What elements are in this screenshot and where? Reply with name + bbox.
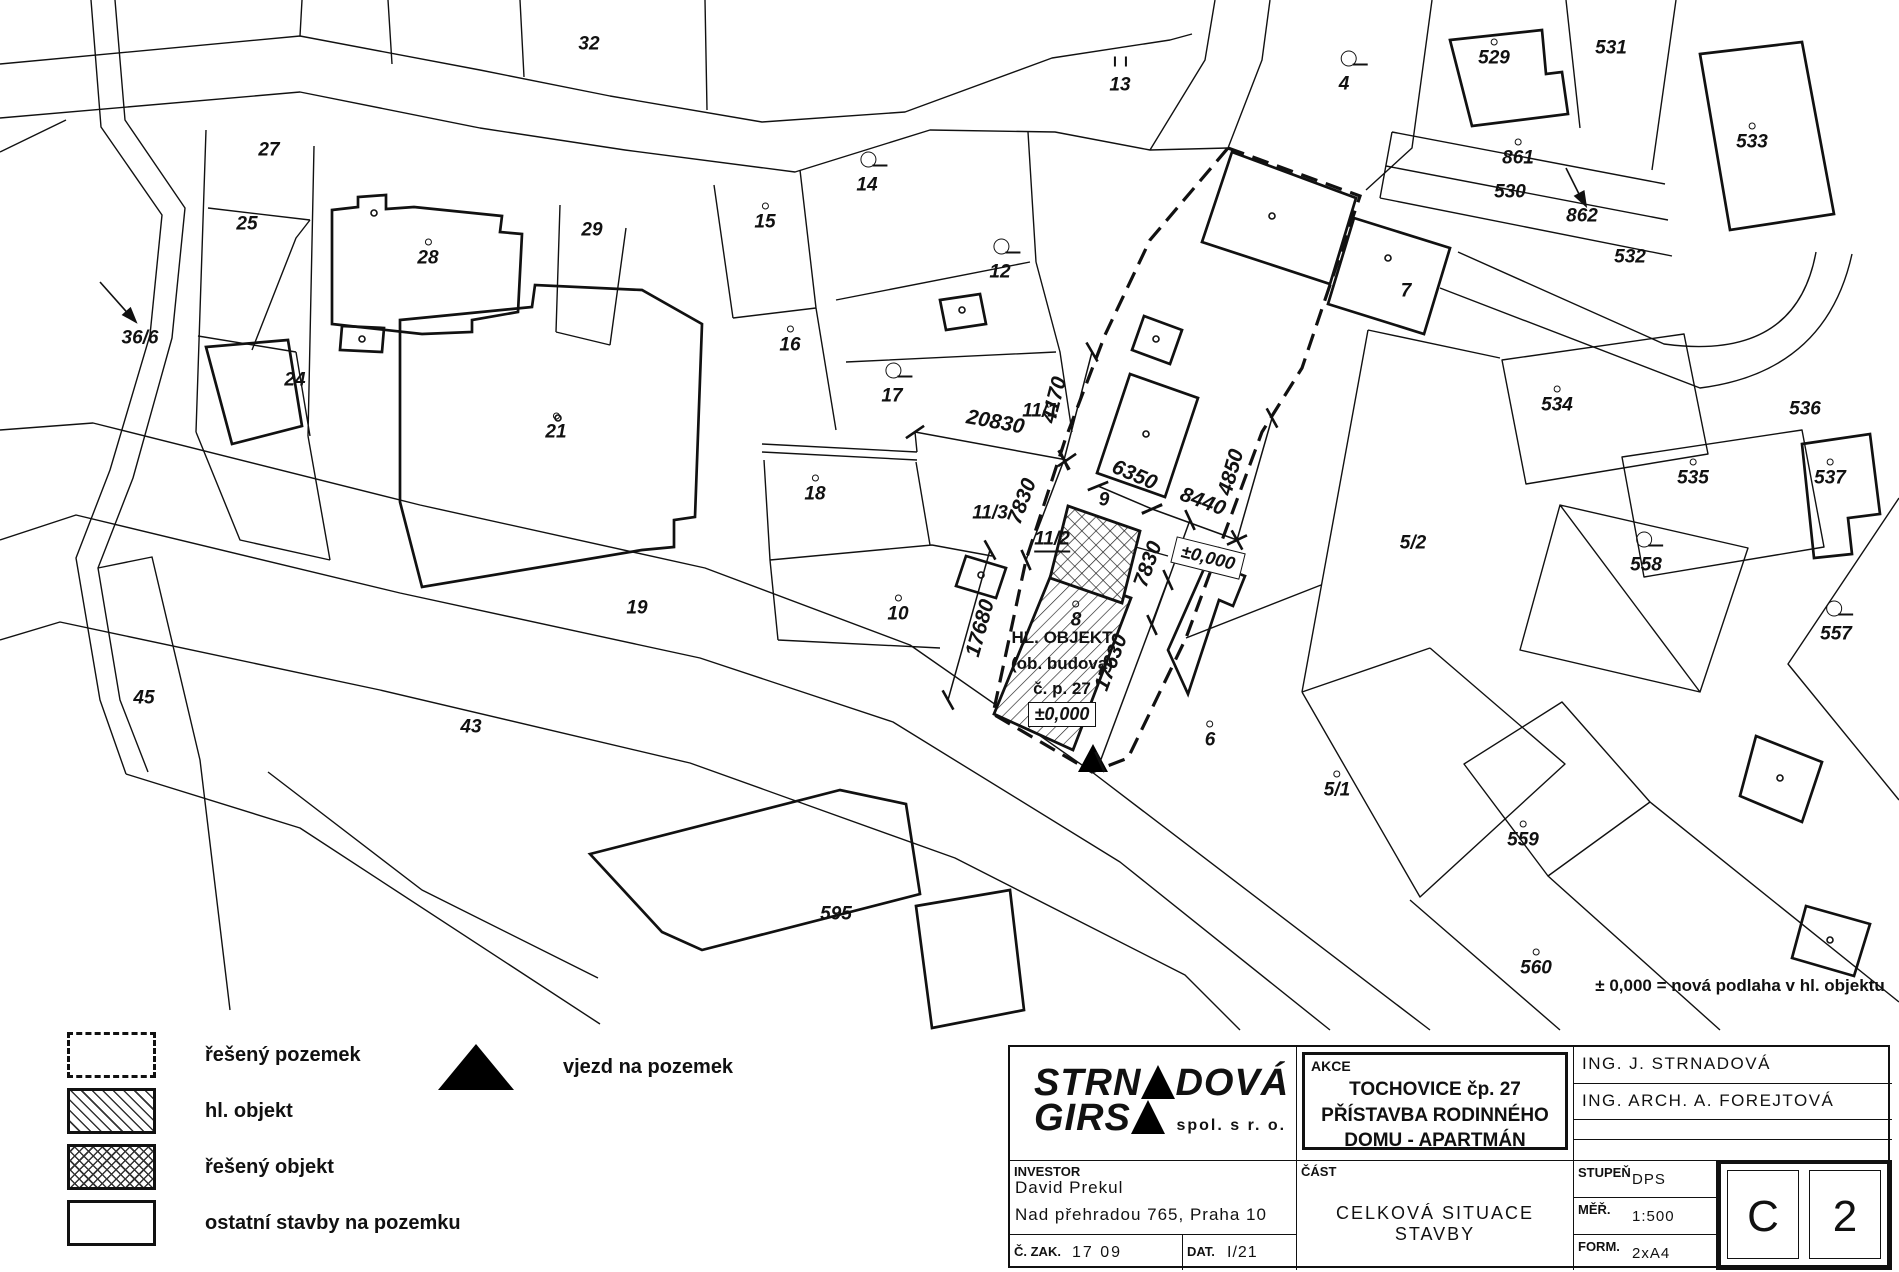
legend-label: řešený pozemek (205, 1044, 361, 1067)
logo-text: DOVÁ (1175, 1062, 1289, 1104)
company-logo: STRNDOVÁ GIRS spol. s r. o. (1010, 1047, 1297, 1160)
dimension-label: 20830 (964, 405, 1027, 438)
scale-row: MĚŘ. 1:500 (1574, 1198, 1716, 1235)
legend-item-solved-parcel: řešený pozemek vjezd na pozemek (67, 1032, 707, 1078)
legend-item-main-object: hl. objekt (67, 1088, 707, 1134)
main-building-line2: (ob. budova) (1011, 651, 1113, 677)
stage-row: STUPEŇ DPS (1574, 1161, 1716, 1198)
scale-label: MĚŘ. (1578, 1202, 1611, 1217)
dashed-swatch (67, 1032, 156, 1078)
investor-cell: INVESTOR David Prekul Nad přehradou 765,… (1010, 1160, 1297, 1270)
part-label: ČÁST (1297, 1161, 1573, 1182)
scale-value: 1:500 (1632, 1208, 1675, 1225)
legend-entrance-label: vjezd na pozemek (563, 1056, 733, 1079)
project-title-line: DOMU - APARTMÁN (1305, 1128, 1565, 1154)
parcel-boundaries (0, 0, 1899, 1030)
entrance-triangle-icon (438, 1044, 514, 1090)
legend-label: řešený objekt (205, 1156, 334, 1179)
main-building-line3: č. p. 27 (1011, 676, 1113, 702)
project-cell: AKCE TOCHOVICE čp. 27 PŘÍSTAVBA RODINNÉH… (1297, 1047, 1574, 1160)
main-building-caption: HL. OBJEKT (ob. budova) č. p. 27 ±0,000 (1011, 625, 1113, 727)
plain-swatch (67, 1200, 156, 1246)
project-box: AKCE TOCHOVICE čp. 27 PŘÍSTAVBA RODINNÉH… (1302, 1052, 1568, 1150)
project-title-line: TOCHOVICE čp. 27 (1305, 1077, 1565, 1103)
main-building-level: ±0,000 (1028, 702, 1097, 727)
triangle-icon (1141, 1065, 1175, 1099)
meta-column: STUPEŇ DPS MĚŘ. 1:500 FORM. 2xA4 (1574, 1160, 1716, 1270)
part-value: CELKOVÁ SITUACE STAVBY (1297, 1203, 1573, 1245)
title-block: STRNDOVÁ GIRS spol. s r. o. AKCE TOCHOVI… (1008, 1045, 1890, 1268)
order-label: Č. ZAK. (1010, 1241, 1065, 1262)
format-row: FORM. 2xA4 (1574, 1235, 1716, 1268)
sheet-letter: C (1727, 1170, 1799, 1259)
triangle-icon (1131, 1100, 1165, 1134)
engineer-row (1574, 1120, 1892, 1140)
order-row: Č. ZAK. 17 09 DAT. I/21 (1010, 1234, 1296, 1270)
legend-item-other-buildings: ostatní stavby na pozemku (67, 1200, 707, 1246)
hatch-swatch (67, 1088, 156, 1134)
sheet-number-box: C 2 (1716, 1160, 1892, 1270)
crosshatch-swatch (67, 1144, 156, 1190)
main-building-line1: HL. OBJEKT (1011, 625, 1113, 651)
project-title-line: PŘÍSTAVBA RODINNÉHO (1305, 1103, 1565, 1129)
legend-label: hl. objekt (205, 1100, 293, 1123)
logo-tagline: spol. s r. o. (1176, 1117, 1286, 1134)
legend-label: ostatní stavby na pozemku (205, 1212, 461, 1235)
dimension-label: 6350 (1109, 455, 1161, 495)
date-label: DAT. (1183, 1241, 1219, 1262)
engineer-row: ING. ARCH. A. FOREJTOVÁ (1574, 1084, 1892, 1120)
engineer-row: ING. J. STRNADOVÁ (1574, 1047, 1892, 1084)
format-label: FORM. (1578, 1239, 1620, 1254)
date-value: I/21 (1227, 1244, 1258, 1262)
dimension-label: 17680 (961, 597, 999, 660)
drawing-sheet: 208304170635084404850783078301768017630 … (0, 0, 1899, 1272)
investor-name: David Prekul (1015, 1178, 1123, 1198)
date-cell: DAT. I/21 (1182, 1235, 1297, 1270)
stage-value: DPS (1632, 1171, 1666, 1188)
dimension-label: 4850 (1213, 446, 1248, 499)
part-cell: ČÁST CELKOVÁ SITUACE STAVBY (1297, 1160, 1574, 1270)
legend: řešený pozemek vjezd na pozemek hl. obje… (0, 1020, 700, 1272)
dimension-label: 7830 (1003, 475, 1041, 527)
dimension-label: 4170 (1037, 374, 1071, 426)
format-value: 2xA4 (1632, 1245, 1670, 1262)
building-outlines (206, 30, 1880, 1028)
stage-label: STUPEŇ (1578, 1165, 1631, 1180)
level-note: ± 0,000 = nová podlaha v hl. objektu (1595, 976, 1884, 996)
logo-text: GIRS (1034, 1097, 1131, 1139)
engineer-row (1574, 1140, 1892, 1160)
investor-address: Nad přehradou 765, Praha 10 (1015, 1205, 1267, 1225)
order-value: 17 09 (1072, 1244, 1122, 1262)
project-label: AKCE (1311, 1058, 1351, 1074)
legend-item-solved-object: řešený objekt (67, 1144, 707, 1190)
sheet-number: 2 (1809, 1170, 1881, 1259)
